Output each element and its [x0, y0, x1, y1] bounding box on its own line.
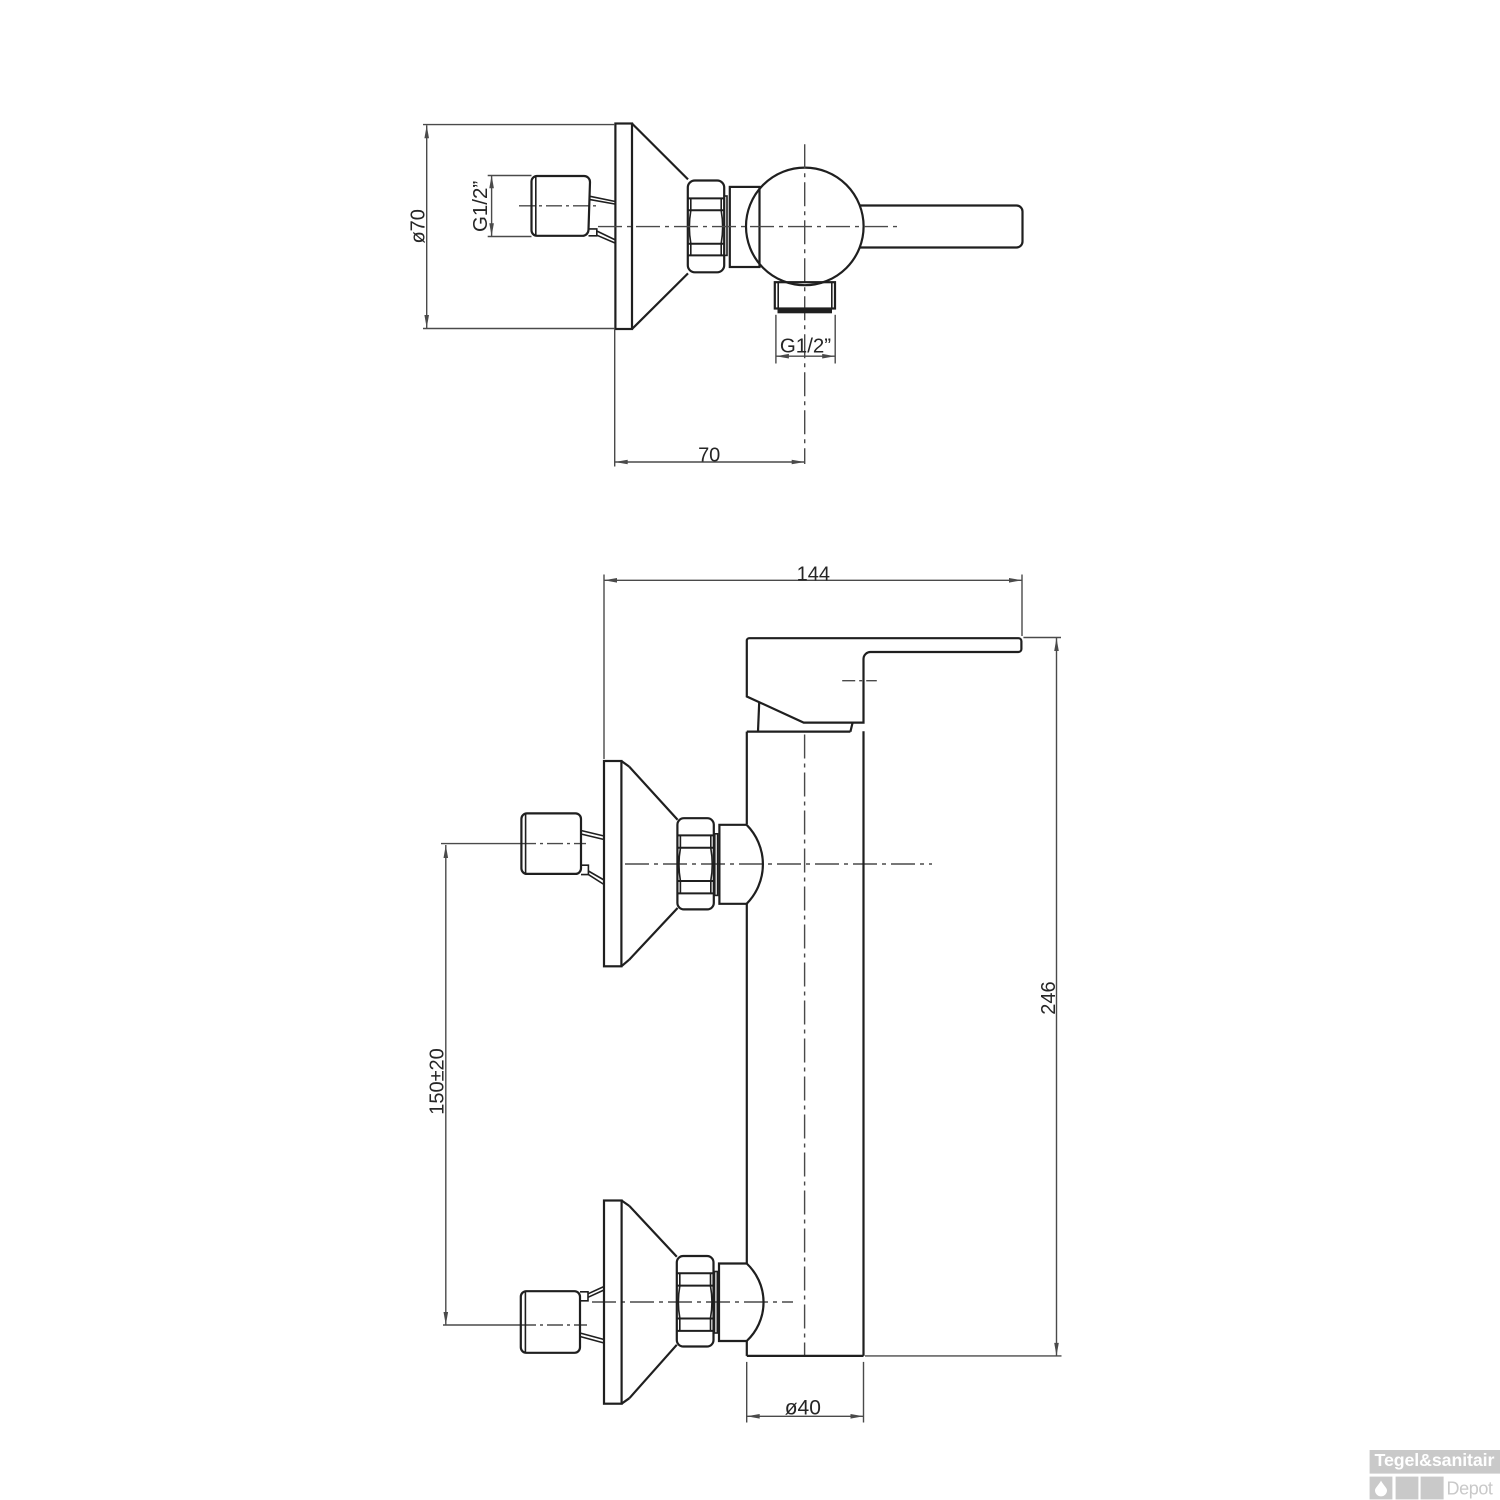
svg-text:246: 246 [1038, 981, 1060, 1014]
svg-text:G1/2”: G1/2” [780, 334, 831, 357]
svg-text:G1/2”: G1/2” [469, 181, 492, 232]
svg-text:Tegel&sanitair: Tegel&sanitair [1375, 1450, 1495, 1470]
svg-text:Depot: Depot [1447, 1479, 1493, 1499]
svg-text:ø40: ø40 [785, 1397, 821, 1420]
svg-text:ø70: ø70 [408, 209, 430, 243]
svg-text:150±20: 150±20 [427, 1048, 449, 1115]
svg-text:70: 70 [698, 444, 720, 466]
svg-text:144: 144 [797, 564, 830, 586]
